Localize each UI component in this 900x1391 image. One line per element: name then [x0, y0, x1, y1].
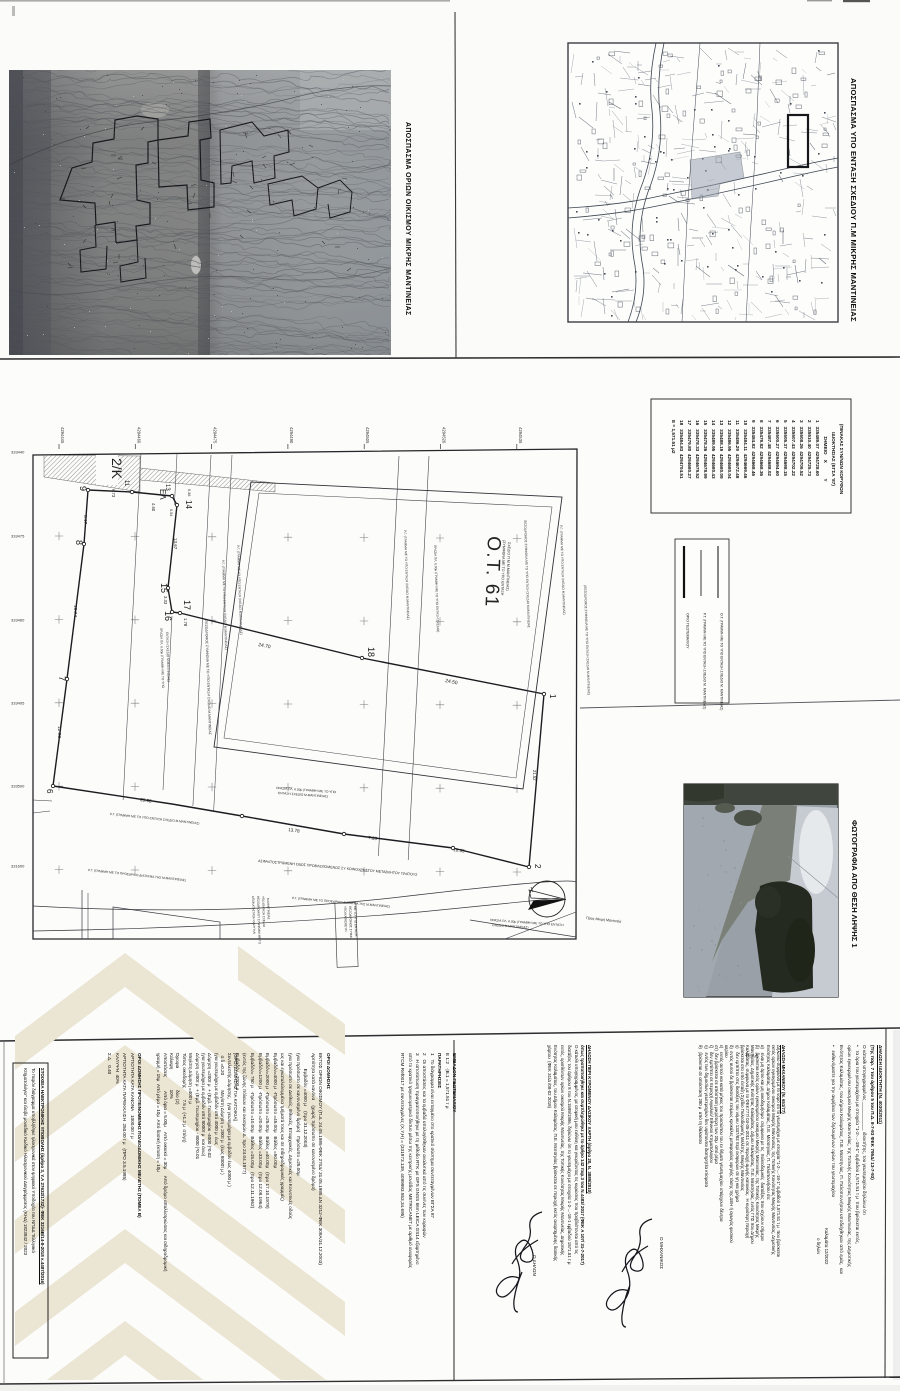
svg-text:Ο.Τ. (ΓΡΑΜΜΗ ΜΕ ΤΟ ΥΠΟ ΕΝΤΑΞΗ: Ο.Τ. (ΓΡΑΜΜΗ ΜΕ ΤΟ ΥΠΟ ΕΝΤΑΞΗ ΣΧΕΔΙΟ Μ. … [720, 613, 724, 710]
svg-text:4294505: 4294505 [365, 427, 370, 444]
svg-text:Ρ.Γ. (ΓΡΑΜΜΗ ΜΕ ΤΟ ΥΠΟ ΕΝΤΑΞΗ: Ρ.Γ. (ΓΡΑΜΜΗ ΜΕ ΤΟ ΥΠΟ ΕΝΤΑΞΗ ΣΧΕΔΙΟ Μ. … [703, 613, 707, 709]
svg-text:333495: 333495 [11, 701, 25, 706]
svg-text:1.78: 1.78 [183, 618, 188, 627]
svg-text:15: 15 [159, 583, 169, 593]
svg-text:331600: 331600 [11, 864, 25, 869]
svg-text:Ο.Τ. 61: Ο.Τ. 61 [480, 536, 503, 608]
svg-text:4294475: 4294475 [213, 427, 218, 444]
svg-text:11: 11 [123, 480, 129, 487]
svg-text:13.67: 13.67 [173, 538, 178, 550]
svg-text:333475: 333475 [11, 534, 25, 539]
svg-text:3.33: 3.33 [163, 596, 168, 605]
svg-text:333500: 333500 [11, 784, 25, 789]
svg-text:21.52: 21.52 [532, 770, 537, 781]
svg-text:0.36: 0.36 [187, 489, 191, 496]
svg-text:4294445: 4294445 [60, 427, 65, 444]
svg-text:Μ.ΜΑΝΤΙΝΕΙΑΣ: Μ.ΜΑΝΤΙΝΕΙΑΣ [266, 898, 271, 920]
svg-text:18: 18 [366, 647, 376, 657]
svg-text:4294520: 4294520 [442, 427, 447, 444]
svg-text:4294490: 4294490 [289, 427, 294, 444]
svg-text:16: 16 [163, 611, 173, 621]
svg-text:16.74: 16.74 [72, 605, 78, 617]
svg-text:ΟΡΙΟ ΓΕΩΤΕΜΑΧΙΟΥ: ΟΡΙΟ ΓΕΩΤΕΜΑΧΙΟΥ [686, 613, 690, 649]
svg-text:4294535: 4294535 [518, 427, 523, 444]
svg-text:6: 6 [45, 789, 54, 794]
svg-text:8: 8 [74, 540, 84, 545]
svg-text:2/K: 2/K [109, 458, 125, 480]
svg-text:12.93: 12.93 [56, 726, 62, 738]
svg-text:4294460: 4294460 [136, 427, 141, 444]
svg-text:13: 13 [164, 484, 170, 491]
svg-text:6.73: 6.73 [111, 489, 116, 498]
svg-text:333440: 333440 [11, 450, 25, 455]
svg-text:0.54: 0.54 [169, 509, 173, 516]
svg-text:17: 17 [182, 600, 192, 610]
svg-text:333460: 333460 [11, 618, 25, 623]
svg-text:6.17: 6.17 [82, 515, 88, 525]
svg-text:9: 9 [78, 486, 88, 491]
svg-text:1: 1 [548, 694, 557, 699]
svg-text:7: 7 [57, 676, 67, 681]
svg-text:4.60: 4.60 [151, 503, 156, 512]
svg-text:2: 2 [533, 864, 542, 869]
svg-text:14: 14 [184, 500, 193, 509]
